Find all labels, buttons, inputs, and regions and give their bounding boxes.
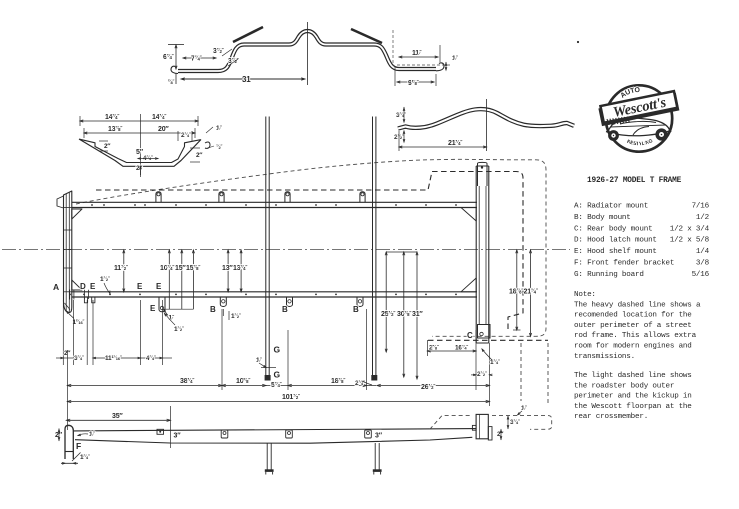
svg-text:381⁄4″: 381⁄4″ [180, 377, 194, 385]
svg-text:1011⁄2″: 1011⁄2″ [282, 393, 300, 401]
svg-text:183⁄8″: 183⁄8″ [509, 287, 523, 295]
svg-text:Note:: Note: [574, 291, 596, 299]
svg-text:133⁄4″: 133⁄4″ [233, 264, 247, 272]
svg-text:E: E [90, 282, 96, 291]
svg-text:B: B [282, 305, 288, 314]
svg-text:G: G [274, 345, 281, 355]
svg-text:the Wescott floorpan at the: the Wescott floorpan at the [574, 403, 692, 411]
svg-text:3″: 3″ [375, 433, 383, 440]
svg-text:105⁄8″: 105⁄8″ [236, 377, 250, 385]
svg-text:rod frame. This allows extra: rod frame. This allows extra [574, 332, 697, 340]
svg-text:161⁄4″: 161⁄4″ [455, 343, 468, 351]
svg-text:G: G [274, 370, 281, 380]
svg-text:E: Hood shelf mount: E: Hood shelf mount [574, 248, 657, 256]
svg-text:B: B [210, 305, 216, 314]
svg-text:143⁄4″: 143⁄4″ [105, 113, 119, 121]
svg-text:303⁄8″: 303⁄8″ [397, 310, 411, 318]
svg-text:103⁄4″: 103⁄4″ [160, 264, 174, 272]
svg-text:F: Front fender bracket: F: Front fender bracket [574, 260, 674, 268]
svg-text:5/16: 5/16 [692, 271, 710, 279]
svg-text:15″: 15″ [175, 265, 186, 272]
svg-text:perimeter and the kickup in: perimeter and the kickup in [574, 393, 692, 401]
svg-text:261⁄2″: 261⁄2″ [421, 383, 435, 391]
svg-text:3/8: 3/8 [696, 260, 710, 268]
svg-text:D: Hood latch mount: D: Hood latch mount [574, 237, 657, 245]
svg-text:F: F [76, 441, 81, 451]
svg-text:B: Body mount: B: Body mount [574, 214, 631, 222]
svg-text:211⁄4″: 211⁄4″ [524, 287, 538, 295]
svg-text:the roadster body outer: the roadster body outer [574, 382, 674, 390]
svg-text:The light dashed line shows: The light dashed line shows [574, 372, 692, 380]
svg-text:137⁄8″: 137⁄8″ [108, 125, 122, 133]
svg-text:outer perimeter of a street: outer perimeter of a street [574, 322, 692, 330]
svg-text:251⁄2″: 251⁄2″ [381, 310, 395, 318]
svg-text:A: Radiator mount: A: Radiator mount [574, 203, 648, 211]
svg-text:20″: 20″ [158, 126, 169, 133]
svg-text:G: Running board: G: Running board [574, 271, 644, 279]
svg-text:C: C [467, 331, 473, 340]
svg-text:C: Rear body mount: C: Rear body mount [574, 225, 652, 233]
svg-text:2″: 2″ [196, 152, 202, 159]
svg-text:211⁄4″: 211⁄4″ [448, 139, 462, 147]
svg-text:7/16: 7/16 [692, 203, 710, 211]
svg-text:141⁄4″: 141⁄4″ [152, 113, 166, 121]
svg-text:rear crossmember.: rear crossmember. [574, 413, 648, 421]
svg-text:13″: 13″ [222, 265, 233, 272]
svg-text:1/2: 1/2 [696, 214, 710, 222]
svg-text:31: 31 [242, 75, 251, 84]
svg-text:E: E [150, 304, 156, 313]
svg-text:E: E [137, 282, 143, 291]
svg-text:B: B [353, 305, 359, 314]
svg-text:transmissions.: transmissions. [574, 353, 635, 361]
svg-text:The heavy dashed line shows a: The heavy dashed line shows a [574, 301, 701, 309]
svg-text:1/4: 1/4 [696, 248, 710, 256]
svg-text:31″: 31″ [412, 311, 423, 318]
svg-text:183⁄8″: 183⁄8″ [331, 377, 345, 385]
svg-text:room for modern engines and: room for modern engines and [574, 343, 692, 351]
svg-text:2″: 2″ [104, 143, 110, 150]
svg-text:157⁄8″: 157⁄8″ [186, 264, 200, 272]
svg-text:35″: 35″ [112, 413, 123, 420]
svg-text:1/2 x 3/4: 1/2 x 3/4 [670, 225, 710, 233]
svg-text:1926-27 MODEL T FRAME: 1926-27 MODEL T FRAME [587, 177, 682, 185]
svg-text:1/2 x 5/8: 1/2 x 5/8 [670, 237, 710, 245]
svg-text:111⁄2″: 111⁄2″ [114, 264, 128, 272]
svg-text:E: E [156, 282, 162, 291]
svg-text:D: D [80, 282, 86, 291]
svg-text:3″: 3″ [174, 433, 182, 440]
svg-text:A: A [53, 282, 59, 292]
svg-text:recomended location for the: recomended location for the [574, 312, 692, 320]
